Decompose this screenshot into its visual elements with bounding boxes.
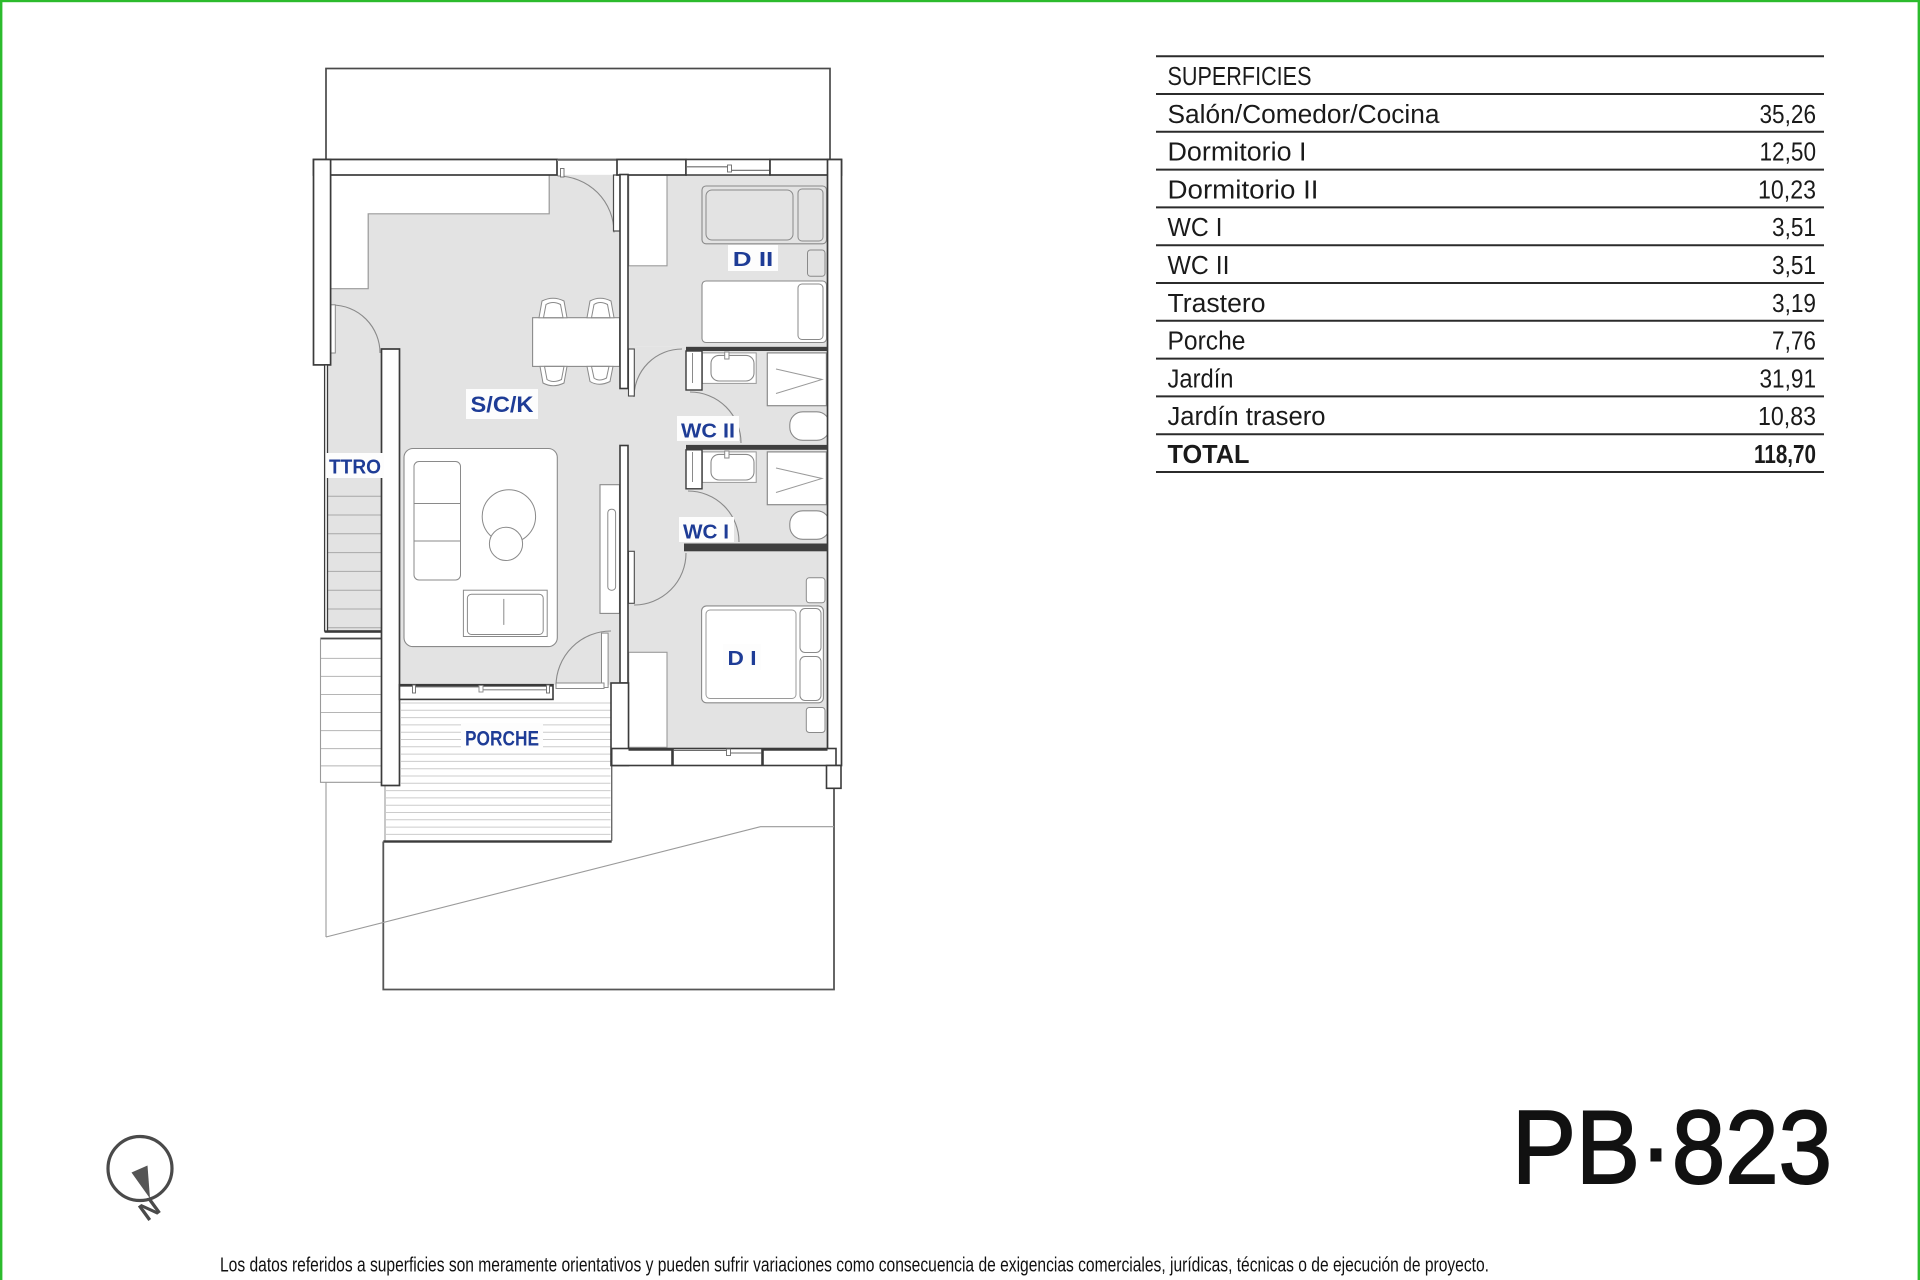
svg-text:D I: D I [728,648,757,670]
svg-text:PORCHE: PORCHE [465,728,539,751]
svg-text:Porche: Porche [1168,328,1246,356]
svg-text:10,23: 10,23 [1758,176,1816,204]
svg-text:WC I: WC I [683,522,729,544]
svg-text:31,91: 31,91 [1760,365,1817,393]
svg-text:3,51: 3,51 [1772,252,1816,280]
svg-text:12,50: 12,50 [1760,139,1817,167]
svg-text:Salón/Comedor/Cocina: Salón/Comedor/Cocina [1168,101,1441,129]
svg-text:Jardín trasero: Jardín trasero [1168,403,1326,431]
svg-text:10,83: 10,83 [1758,403,1816,431]
svg-text:WC II: WC II [681,421,735,443]
svg-text:Dormitorio II: Dormitorio II [1168,176,1319,204]
svg-text:Jardín: Jardín [1168,365,1234,393]
svg-text:WC I: WC I [1168,214,1223,242]
svg-text:Dormitorio I: Dormitorio I [1168,139,1307,167]
svg-text:3,19: 3,19 [1772,290,1816,318]
svg-text:PB·823: PB·823 [1512,1090,1832,1206]
svg-text:SUPERFICIES: SUPERFICIES [1168,63,1312,91]
svg-text:TOTAL: TOTAL [1168,441,1250,469]
svg-text:S/C/K: S/C/K [471,392,534,417]
svg-text:118,70: 118,70 [1754,441,1816,469]
svg-text:Trastero: Trastero [1168,290,1266,318]
svg-text:35,26: 35,26 [1760,101,1817,129]
svg-text:Los datos referidos a superfic: Los datos referidos a superficies son me… [220,1254,1489,1277]
svg-text:3,51: 3,51 [1772,214,1816,242]
svg-text:D II: D II [733,249,774,271]
svg-text:7,76: 7,76 [1772,328,1816,356]
svg-text:WC II: WC II [1168,252,1230,280]
svg-text:TTRO: TTRO [329,457,381,479]
